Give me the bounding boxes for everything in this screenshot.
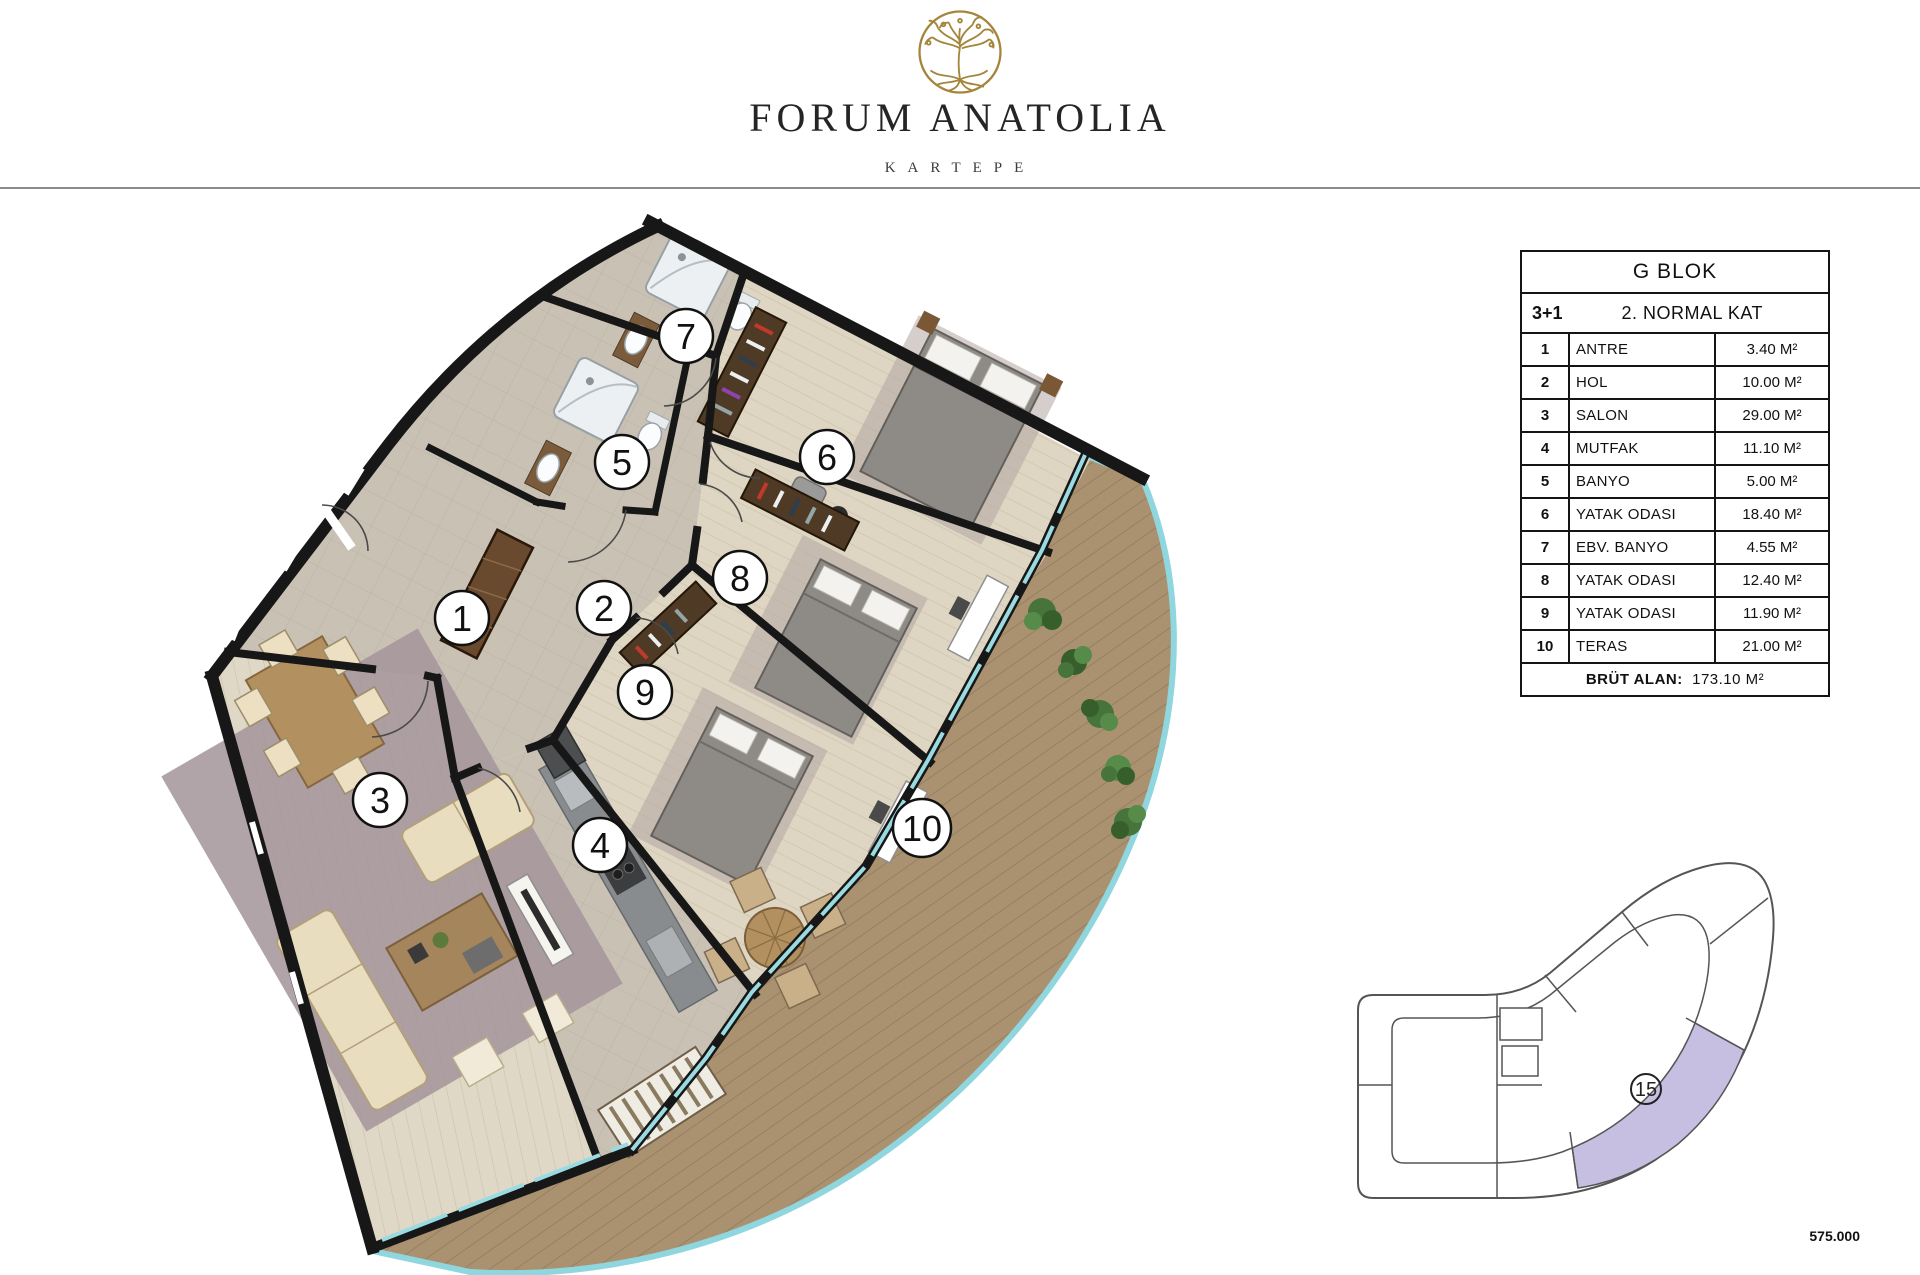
svg-text:7: 7 [676,316,696,357]
room-label-2: 2 [577,581,631,635]
unit-info-table: G BLOK 3+1 2. NORMAL KAT 1ANTRE3.40 M² 2… [1520,250,1830,697]
svg-text:4: 4 [590,825,610,866]
svg-text:9: 9 [635,672,655,713]
room-label-9: 9 [618,665,672,719]
room-label-4: 4 [573,818,627,872]
table-row: 8YATAK ODASI12.40 M² [1521,564,1829,597]
table-row: 6YATAK ODASI18.40 M² [1521,498,1829,531]
room-label-6: 6 [800,430,854,484]
room-label-10: 10 [893,799,951,857]
total-value: 173.10 M² [1692,671,1764,688]
table-row: 10TERAS21.00 M² [1521,630,1829,663]
room-label-5: 5 [595,435,649,489]
table-row: 7EBV. BANYO4.55 M² [1521,531,1829,564]
floor-name: 2. NORMAL KAT [1563,303,1822,324]
table-row: 4MUTFAK11.10 M² [1521,432,1829,465]
unit-type: 3+1 [1528,303,1563,324]
key-plan: 15 [1358,863,1774,1198]
table-row: 1ANTRE3.40 M² [1521,333,1829,366]
room-label-1: 1 [435,591,489,645]
price-label: 575.000 [1809,1228,1860,1244]
table-row: 3SALON29.00 M² [1521,399,1829,432]
table-row: 2HOL10.00 M² [1521,366,1829,399]
svg-text:6: 6 [817,437,837,478]
table-row: 9YATAK ODASI11.90 M² [1521,597,1829,630]
svg-text:1: 1 [452,598,472,639]
total-label: BRÜT ALAN: [1586,671,1683,688]
svg-text:5: 5 [612,442,632,483]
keyplan-core [1497,1008,1542,1085]
keyplan-unit-label: 15 [1631,1074,1661,1104]
svg-text:3: 3 [370,780,390,821]
block-title: G BLOK [1521,251,1829,293]
svg-text:15: 15 [1635,1079,1657,1101]
table-total-row: BRÜT ALAN: 173.10 M² [1521,663,1829,696]
table-subtitle-row: 3+1 2. NORMAL KAT [1521,293,1829,333]
table-title-row: G BLOK [1521,251,1829,293]
page: FORUM ANATOLIA KARTEPE [0,0,1920,1275]
room-label-8: 8 [713,551,767,605]
svg-text:8: 8 [730,558,750,599]
room-label-7: 7 [659,309,713,363]
svg-text:2: 2 [594,588,614,629]
table-row: 5BANYO5.00 M² [1521,465,1829,498]
svg-text:10: 10 [902,808,942,849]
room-label-3: 3 [353,773,407,827]
